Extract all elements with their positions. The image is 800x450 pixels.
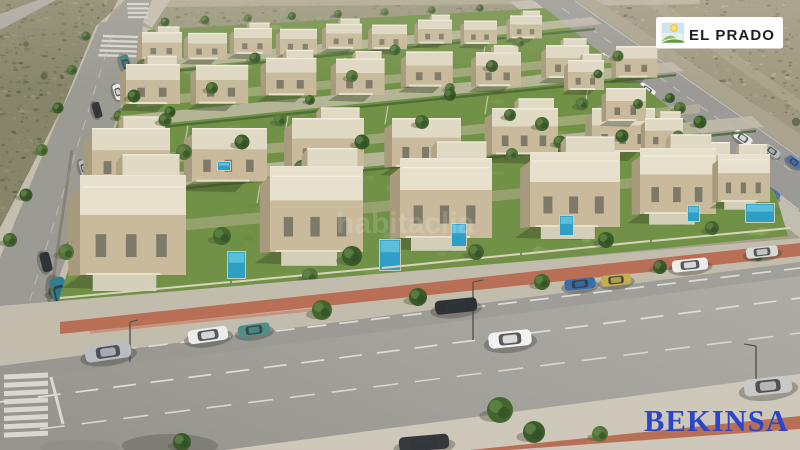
svg-text:EL PRADO: EL PRADO: [689, 27, 775, 44]
svg-text:BEKINSA: BEKINSA: [644, 404, 789, 438]
svg-text:habitaclia: habitaclia: [336, 207, 475, 240]
